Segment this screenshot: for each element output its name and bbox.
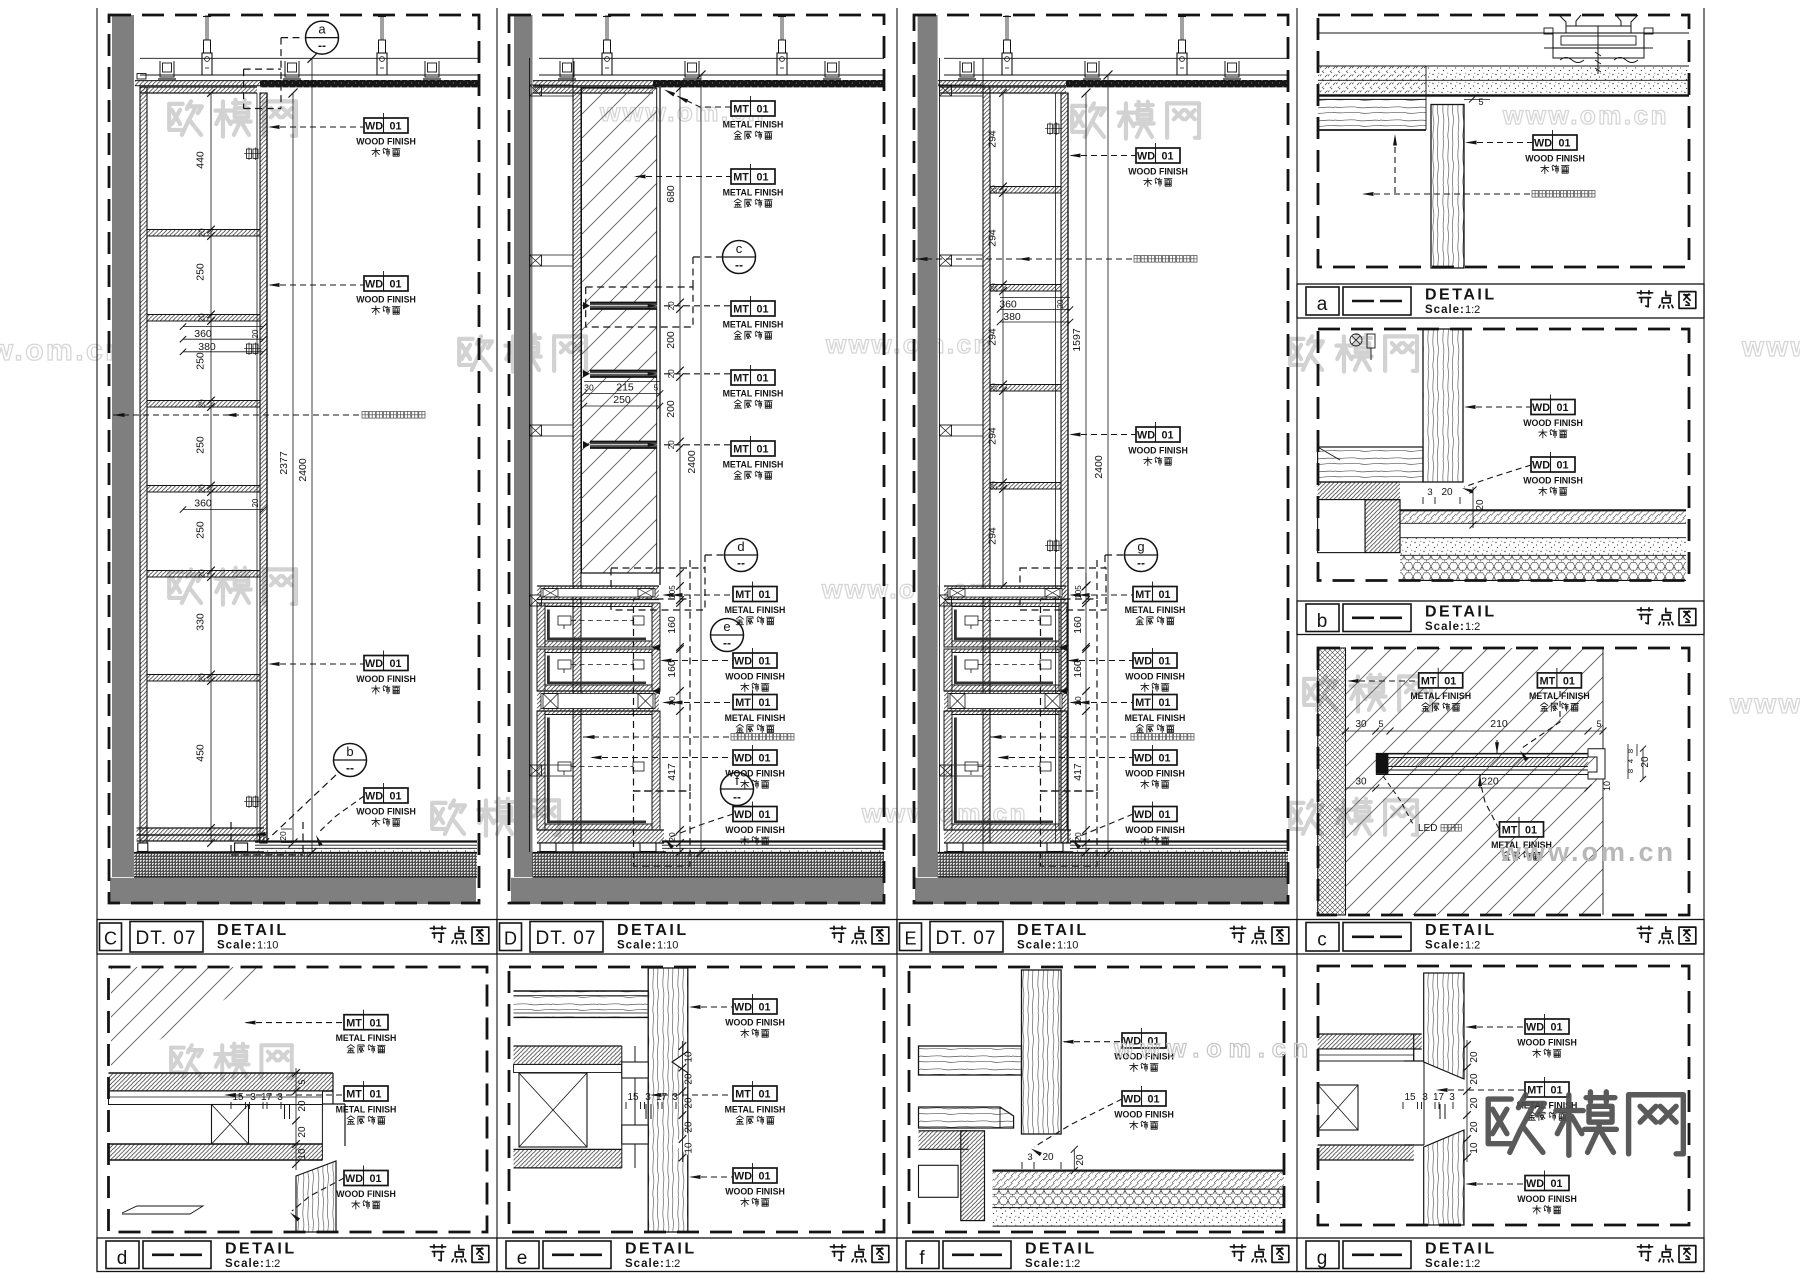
svg-text:3: 3 xyxy=(277,1092,283,1103)
svg-text:3: 3 xyxy=(672,1092,678,1103)
svg-text:--: -- xyxy=(346,761,354,775)
svg-text:WD: WD xyxy=(1526,1178,1544,1190)
svg-text:360: 360 xyxy=(999,299,1017,311)
svg-text:20: 20 xyxy=(198,484,207,493)
svg-text:WOOD FINISH: WOOD FINISH xyxy=(725,1017,785,1027)
svg-text:20: 20 xyxy=(990,185,999,194)
svg-text:WOOD FINISH: WOOD FINISH xyxy=(725,825,785,835)
svg-text:01: 01 xyxy=(389,658,401,670)
svg-text:WOOD FINISH: WOOD FINISH xyxy=(356,674,416,684)
svg-text:METAL FINISH: METAL FINISH xyxy=(723,319,784,329)
svg-text:WOOD FINISH: WOOD FINISH xyxy=(1525,153,1585,163)
svg-text:20: 20 xyxy=(684,1073,695,1085)
svg-text:MT: MT xyxy=(735,1089,751,1101)
svg-text:3: 3 xyxy=(250,1092,256,1103)
svg-text:01: 01 xyxy=(758,697,770,709)
svg-text:5: 5 xyxy=(654,384,659,393)
svg-text:01: 01 xyxy=(756,104,768,116)
svg-text:450: 450 xyxy=(195,744,207,762)
svg-text:20: 20 xyxy=(1073,696,1083,706)
svg-text:250: 250 xyxy=(195,436,207,454)
svg-text:01: 01 xyxy=(1161,430,1173,442)
svg-text:WOOD FINISH: WOOD FINISH xyxy=(1125,825,1185,835)
svg-text:1:2: 1:2 xyxy=(265,1258,280,1270)
svg-text:METAL FINISH: METAL FINISH xyxy=(723,119,784,129)
svg-text:1:2: 1:2 xyxy=(1065,1258,1080,1270)
svg-text:1:2: 1:2 xyxy=(665,1258,680,1270)
svg-text:01: 01 xyxy=(1558,138,1570,150)
svg-text:01: 01 xyxy=(756,172,768,184)
svg-text:10: 10 xyxy=(297,1148,308,1160)
svg-text:METAL FINISH: METAL FINISH xyxy=(1125,713,1186,723)
svg-text:b: b xyxy=(1317,611,1328,632)
svg-text:200: 200 xyxy=(665,331,677,349)
svg-text:01: 01 xyxy=(1444,676,1456,688)
svg-text:01: 01 xyxy=(1158,809,1170,821)
svg-text:160: 160 xyxy=(1072,616,1084,634)
svg-text:WOOD FINISH: WOOD FINISH xyxy=(725,1186,785,1196)
svg-text:680: 680 xyxy=(665,185,677,203)
svg-text:01: 01 xyxy=(756,304,768,316)
svg-text:DETAIL: DETAIL xyxy=(217,922,289,939)
svg-text:5: 5 xyxy=(1378,719,1383,729)
svg-text:20: 20 xyxy=(251,498,260,507)
svg-text:WD: WD xyxy=(1123,1094,1141,1106)
svg-text:01: 01 xyxy=(369,1017,381,1029)
svg-text:MT: MT xyxy=(733,373,749,385)
svg-text:01: 01 xyxy=(756,373,768,385)
svg-text:WOOD FINISH: WOOD FINISH xyxy=(356,294,416,304)
svg-text:20: 20 xyxy=(198,228,207,237)
svg-text:1:2: 1:2 xyxy=(1465,304,1480,316)
svg-text:D: D xyxy=(504,929,517,949)
svg-text:--: -- xyxy=(318,39,326,53)
svg-text:WOOD FINISH: WOOD FINISH xyxy=(1517,1037,1577,1047)
svg-text:METAL FINISH: METAL FINISH xyxy=(1125,605,1186,615)
svg-text:WOOD FINISH: WOOD FINISH xyxy=(1128,445,1188,455)
svg-text:1:2: 1:2 xyxy=(1465,940,1480,952)
svg-text:20: 20 xyxy=(1469,1051,1480,1063)
svg-text:MT: MT xyxy=(733,444,749,456)
svg-text:01: 01 xyxy=(1158,589,1170,601)
svg-text:380: 380 xyxy=(198,341,216,353)
svg-text:a: a xyxy=(1317,294,1328,315)
svg-text:WD: WD xyxy=(365,279,383,291)
svg-text:10: 10 xyxy=(684,1142,695,1154)
svg-text:DETAIL: DETAIL xyxy=(1025,1241,1097,1258)
svg-text:DETAIL: DETAIL xyxy=(1425,287,1497,304)
svg-text:METAL FINISH: METAL FINISH xyxy=(723,459,784,469)
svg-text:20: 20 xyxy=(684,1121,695,1133)
svg-text:294: 294 xyxy=(987,527,999,545)
svg-text:WD: WD xyxy=(1532,460,1550,472)
svg-text:4: 4 xyxy=(1626,759,1635,763)
svg-text:WD: WD xyxy=(734,656,752,668)
svg-text:WOOD FINISH: WOOD FINISH xyxy=(336,1189,396,1199)
svg-text:--: -- xyxy=(735,258,743,272)
svg-text:MT: MT xyxy=(1502,825,1518,837)
svg-text:30: 30 xyxy=(584,383,594,393)
svg-text:g: g xyxy=(1137,539,1144,554)
svg-text:01: 01 xyxy=(756,444,768,456)
svg-text:c: c xyxy=(1317,930,1327,951)
svg-text:DT. 07: DT. 07 xyxy=(136,928,197,949)
svg-text:Scale:: Scale: xyxy=(1425,1258,1465,1270)
svg-text:WOOD FINISH: WOOD FINISH xyxy=(356,136,416,146)
svg-text:www.om.cn: www.om.cn xyxy=(0,334,126,367)
svg-text:360: 360 xyxy=(194,498,212,510)
svg-text:DETAIL: DETAIL xyxy=(617,922,689,939)
svg-text:250: 250 xyxy=(195,352,207,370)
svg-text:10: 10 xyxy=(1602,781,1612,791)
svg-text:1:10: 1:10 xyxy=(257,940,278,952)
svg-text:WD: WD xyxy=(734,753,752,765)
svg-text:01: 01 xyxy=(389,121,401,133)
svg-text:01: 01 xyxy=(369,1089,381,1101)
svg-text:MT: MT xyxy=(735,589,751,601)
svg-text:3: 3 xyxy=(1422,1092,1428,1103)
svg-text:WD: WD xyxy=(1532,402,1550,414)
svg-text:20: 20 xyxy=(1056,299,1065,308)
svg-text:15: 15 xyxy=(627,1092,639,1103)
svg-text:01: 01 xyxy=(1556,460,1568,472)
svg-text:294: 294 xyxy=(987,229,999,247)
svg-text:01: 01 xyxy=(758,809,770,821)
svg-text:MT: MT xyxy=(733,304,749,316)
svg-text:417: 417 xyxy=(1072,763,1084,781)
svg-text:440: 440 xyxy=(195,151,207,169)
svg-text:01: 01 xyxy=(1158,697,1170,709)
svg-text:Scale:: Scale: xyxy=(1425,621,1465,633)
svg-text:294: 294 xyxy=(987,328,999,346)
svg-text:WD: WD xyxy=(1534,138,1552,150)
svg-text:METAL FINISH: METAL FINISH xyxy=(723,187,784,197)
svg-text:01: 01 xyxy=(1550,1085,1562,1097)
svg-text:30: 30 xyxy=(1355,777,1367,788)
svg-text:250: 250 xyxy=(613,394,631,406)
svg-text:330: 330 xyxy=(195,613,207,631)
svg-text:www.om.cn: www.om.cn xyxy=(1499,837,1676,867)
svg-text:01: 01 xyxy=(1563,676,1575,688)
svg-text:01: 01 xyxy=(1550,1022,1562,1034)
svg-text:01: 01 xyxy=(1525,825,1537,837)
svg-text:15: 15 xyxy=(1404,1092,1416,1103)
svg-text:01: 01 xyxy=(758,656,770,668)
svg-text:20: 20 xyxy=(1073,832,1083,842)
svg-text:e: e xyxy=(517,1248,528,1269)
svg-text:Scale:: Scale: xyxy=(1025,1258,1065,1270)
svg-text:294: 294 xyxy=(987,427,999,445)
svg-text:1:2: 1:2 xyxy=(1465,621,1480,633)
svg-text:20: 20 xyxy=(1469,1073,1480,1085)
svg-text:20: 20 xyxy=(198,673,207,682)
svg-text:01: 01 xyxy=(1147,1094,1159,1106)
svg-text:Scale:: Scale: xyxy=(1425,940,1465,952)
svg-text:20: 20 xyxy=(990,383,999,392)
svg-text:01: 01 xyxy=(758,1002,770,1014)
svg-text:WD: WD xyxy=(1137,430,1155,442)
svg-text:01: 01 xyxy=(758,1089,770,1101)
svg-text:WD: WD xyxy=(1526,1022,1544,1034)
svg-text:WOOD FINISH: WOOD FINISH xyxy=(725,671,785,681)
svg-text:d: d xyxy=(117,1248,128,1269)
svg-text:3: 3 xyxy=(1027,1152,1032,1163)
svg-text:METAL FINISH: METAL FINISH xyxy=(725,713,786,723)
svg-text:01: 01 xyxy=(389,791,401,803)
svg-text:3: 3 xyxy=(645,1092,651,1103)
svg-text:b: b xyxy=(346,744,353,759)
svg-text:01: 01 xyxy=(369,1173,381,1185)
svg-text:17: 17 xyxy=(656,1092,668,1103)
svg-text:01: 01 xyxy=(758,753,770,765)
svg-text:20: 20 xyxy=(198,399,207,408)
svg-text:--: -- xyxy=(733,790,741,804)
svg-text:3: 3 xyxy=(1449,1092,1455,1103)
svg-text:20: 20 xyxy=(1469,1121,1480,1133)
svg-text:WOOD FINISH: WOOD FINISH xyxy=(356,806,416,816)
svg-text:5: 5 xyxy=(1478,97,1483,107)
svg-text:17: 17 xyxy=(261,1092,273,1103)
svg-text:WD: WD xyxy=(1134,753,1152,765)
svg-text:8: 8 xyxy=(1626,749,1635,753)
svg-text:215: 215 xyxy=(616,382,634,394)
svg-text:WD: WD xyxy=(1137,151,1155,163)
svg-text:01: 01 xyxy=(1161,151,1173,163)
svg-text:MT: MT xyxy=(1527,1085,1543,1097)
svg-text:c: c xyxy=(736,241,743,256)
svg-text:20: 20 xyxy=(1075,1154,1086,1166)
svg-text:DT. 07: DT. 07 xyxy=(536,928,597,949)
svg-text:417: 417 xyxy=(666,763,678,781)
svg-text:2377: 2377 xyxy=(278,451,290,475)
svg-text:www.om.cn: www.om.cn xyxy=(825,329,992,359)
svg-text:WOOD FINISH: WOOD FINISH xyxy=(1523,475,1583,485)
svg-text:WOOD FINISH: WOOD FINISH xyxy=(1523,418,1583,428)
svg-text:METAL FINISH: METAL FINISH xyxy=(336,1104,397,1114)
svg-text:DETAIL: DETAIL xyxy=(225,1241,297,1258)
svg-text:METAL FINISH: METAL FINISH xyxy=(336,1033,397,1043)
svg-text:WOOD FINISH: WOOD FINISH xyxy=(1125,671,1185,681)
svg-text:WD: WD xyxy=(365,121,383,133)
svg-text:www.om.cn: www.om.cn xyxy=(1741,331,1800,362)
svg-text:DETAIL: DETAIL xyxy=(1017,922,1089,939)
svg-text:10: 10 xyxy=(684,1051,695,1063)
svg-text:WOOD FINISH: WOOD FINISH xyxy=(1114,1109,1174,1119)
svg-text:MT: MT xyxy=(346,1017,362,1029)
svg-text:20: 20 xyxy=(251,329,260,338)
svg-text:d: d xyxy=(737,539,744,554)
svg-text:MT: MT xyxy=(1540,676,1556,688)
svg-text:20: 20 xyxy=(990,283,999,292)
svg-text:WD: WD xyxy=(734,1002,752,1014)
svg-text:WD: WD xyxy=(734,809,752,821)
svg-text:20: 20 xyxy=(198,569,207,578)
svg-text:MT: MT xyxy=(346,1089,362,1101)
svg-text:C: C xyxy=(104,929,117,949)
svg-text:5: 5 xyxy=(297,1079,307,1084)
svg-text:30: 30 xyxy=(1355,719,1367,730)
svg-text:160: 160 xyxy=(1072,660,1084,678)
svg-text:WD: WD xyxy=(1134,656,1152,668)
svg-text:DETAIL: DETAIL xyxy=(1425,1241,1497,1258)
svg-text:--: -- xyxy=(1137,556,1145,570)
svg-text:250: 250 xyxy=(195,521,207,539)
svg-text:1597: 1597 xyxy=(1071,328,1083,352)
svg-text:METAL FINISH: METAL FINISH xyxy=(723,388,784,398)
svg-text:210: 210 xyxy=(1490,718,1508,730)
svg-text:200: 200 xyxy=(665,400,677,418)
svg-text:WOOD FINISH: WOOD FINISH xyxy=(1125,768,1185,778)
svg-text:www.om.cn: www.om.cn xyxy=(1113,1035,1315,1063)
svg-text:20: 20 xyxy=(297,1100,308,1112)
svg-text:WD: WD xyxy=(365,658,383,670)
svg-text:01: 01 xyxy=(1158,753,1170,765)
svg-text:01: 01 xyxy=(389,279,401,291)
svg-text:1:10: 1:10 xyxy=(657,940,678,952)
svg-text:g: g xyxy=(1317,1248,1328,1269)
svg-text:20: 20 xyxy=(1475,499,1486,511)
svg-text:METAL FINISH: METAL FINISH xyxy=(725,605,786,615)
svg-text:WOOD FINISH: WOOD FINISH xyxy=(725,768,785,778)
svg-text:MT: MT xyxy=(733,172,749,184)
svg-text:360: 360 xyxy=(194,328,212,340)
svg-text:Scale:: Scale: xyxy=(217,940,257,952)
svg-text:WD: WD xyxy=(1134,809,1152,821)
svg-text:E: E xyxy=(904,929,916,949)
svg-text:294: 294 xyxy=(987,130,999,148)
svg-text:WOOD FINISH: WOOD FINISH xyxy=(1128,166,1188,176)
svg-text:WD: WD xyxy=(734,1171,752,1183)
svg-text:160: 160 xyxy=(666,660,678,678)
svg-text:DETAIL: DETAIL xyxy=(1425,922,1497,939)
svg-text:20: 20 xyxy=(1469,1097,1480,1109)
svg-text:METAL FINISH: METAL FINISH xyxy=(1529,691,1590,701)
svg-text:DETAIL: DETAIL xyxy=(1425,604,1497,621)
svg-text:e: e xyxy=(723,619,730,634)
svg-text:20: 20 xyxy=(198,313,207,322)
svg-text:380: 380 xyxy=(1003,311,1021,323)
svg-text:01: 01 xyxy=(758,589,770,601)
svg-text:20: 20 xyxy=(278,831,288,841)
svg-text:--: -- xyxy=(723,636,731,650)
svg-text:5: 5 xyxy=(1596,719,1601,729)
svg-text:01: 01 xyxy=(1550,1178,1562,1190)
svg-text:Scale:: Scale: xyxy=(625,1258,665,1270)
svg-text:www.om.cn: www.om.cn xyxy=(1502,100,1669,130)
svg-text:MT: MT xyxy=(735,697,751,709)
svg-text:8: 8 xyxy=(1626,769,1635,773)
svg-text:DT. 07: DT. 07 xyxy=(936,928,997,949)
svg-text:MT: MT xyxy=(1135,589,1151,601)
svg-text:2400: 2400 xyxy=(686,450,698,474)
svg-text:1:10: 1:10 xyxy=(1057,940,1078,952)
svg-text:Scale:: Scale: xyxy=(225,1258,265,1270)
svg-text:WD: WD xyxy=(345,1173,363,1185)
svg-text:2400: 2400 xyxy=(1093,455,1105,479)
svg-text:Scale:: Scale: xyxy=(1017,940,1057,952)
svg-text:160: 160 xyxy=(666,616,678,634)
svg-text:f: f xyxy=(919,1248,925,1269)
svg-text:WD: WD xyxy=(365,791,383,803)
svg-text:Scale:: Scale: xyxy=(1425,304,1465,316)
svg-text:MT: MT xyxy=(1135,697,1151,709)
svg-text:01: 01 xyxy=(758,1171,770,1183)
svg-text:20: 20 xyxy=(1042,1152,1054,1163)
svg-text:METAL FINISH: METAL FINISH xyxy=(1410,691,1471,701)
svg-text:17: 17 xyxy=(1433,1092,1445,1103)
svg-text:Scale:: Scale: xyxy=(617,940,657,952)
svg-text:a: a xyxy=(318,22,326,37)
svg-text:MT: MT xyxy=(1421,676,1437,688)
svg-text:DETAIL: DETAIL xyxy=(625,1241,697,1258)
svg-text:20: 20 xyxy=(1640,756,1651,768)
svg-text:2400: 2400 xyxy=(297,458,309,482)
svg-text:20: 20 xyxy=(684,1097,695,1109)
svg-text:20: 20 xyxy=(990,481,999,490)
svg-text:250: 250 xyxy=(195,263,207,281)
svg-text:3: 3 xyxy=(1427,487,1432,498)
svg-text:01: 01 xyxy=(1158,656,1170,668)
svg-text:LED: LED xyxy=(1418,823,1437,834)
svg-text:220: 220 xyxy=(1481,776,1499,788)
svg-text:MT: MT xyxy=(733,104,749,116)
svg-text:20: 20 xyxy=(297,1126,308,1138)
svg-text:www.om.cn: www.om.cn xyxy=(1729,688,1800,719)
svg-text:01: 01 xyxy=(1556,402,1568,414)
svg-text:WOOD FINISH: WOOD FINISH xyxy=(1517,1194,1577,1204)
svg-text:10: 10 xyxy=(1469,1142,1480,1154)
svg-text:1:2: 1:2 xyxy=(1465,1258,1480,1270)
svg-text:METAL FINISH: METAL FINISH xyxy=(725,1104,786,1114)
svg-text:--: -- xyxy=(737,556,745,570)
svg-text:20: 20 xyxy=(1441,487,1453,498)
